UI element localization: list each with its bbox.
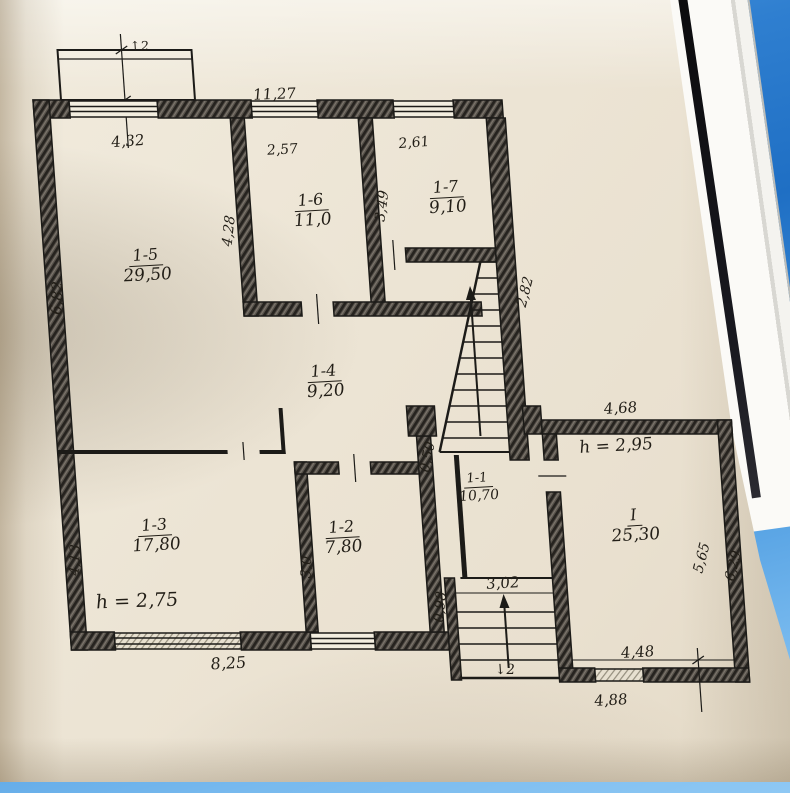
floor-plan-drawing <box>0 0 790 793</box>
upper-stairs <box>426 262 509 452</box>
annex-window <box>595 669 644 681</box>
annex-walls <box>541 420 749 682</box>
north-windows <box>69 101 454 117</box>
photo-background: 1-5 29,50 1-6 11,0 1-7 9,10 1-4 9,20 1-3… <box>0 0 790 793</box>
lower-stairs-arrow <box>499 594 514 668</box>
west-wall <box>33 100 87 650</box>
east-stair-wall <box>486 118 544 460</box>
lower-stairs <box>454 578 559 678</box>
partition-walls <box>55 408 468 578</box>
balcony-outline <box>56 34 198 148</box>
interior-walls <box>230 118 525 680</box>
